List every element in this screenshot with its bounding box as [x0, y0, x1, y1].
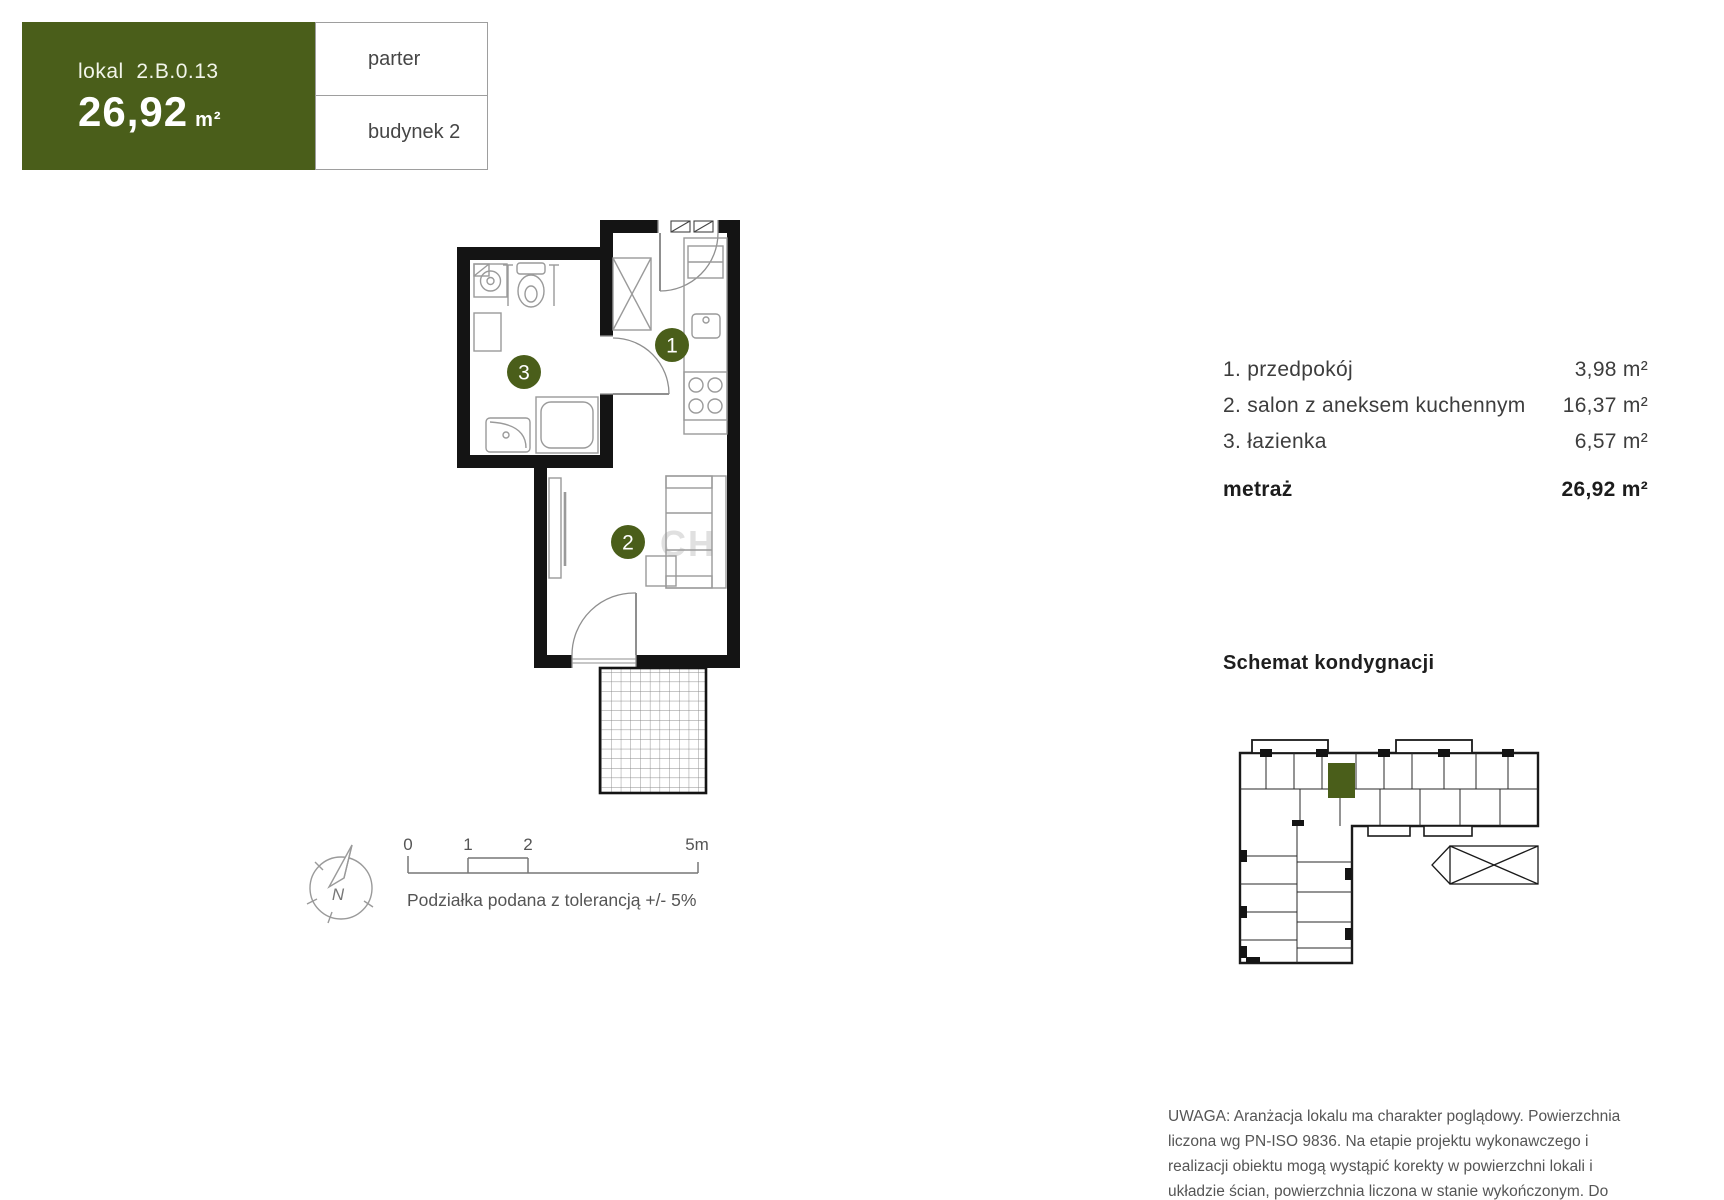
drawing-layer: CH	[0, 0, 1724, 1200]
svg-text:1: 1	[666, 335, 678, 358]
svg-text:2: 2	[622, 532, 634, 555]
scale-tick-0: 0	[403, 835, 412, 854]
tv-cabinet	[549, 478, 565, 578]
north-label: N	[332, 885, 345, 904]
building-schematic	[1240, 740, 1538, 963]
scale-tick-2: 2	[523, 835, 532, 854]
room-marker-2: 2	[611, 525, 645, 559]
stove-icon	[684, 372, 727, 420]
compass: N	[307, 845, 373, 923]
scale-bar: 0 1 2 5m Podziałka podana z tolerancją +…	[403, 835, 709, 910]
hall-wardrobe	[613, 258, 651, 330]
north-arrow-icon	[329, 845, 352, 887]
bathroom-fixtures	[474, 263, 598, 453]
stairs-ramp	[1432, 846, 1538, 884]
sink-icon	[692, 314, 720, 338]
scale-tick-1: 1	[463, 835, 472, 854]
bathroom-bottom-wall	[457, 455, 613, 468]
washer-icon	[474, 264, 507, 297]
floor-plan: 1 2 3	[457, 220, 740, 793]
watermark: CH	[660, 523, 716, 564]
svg-text:3: 3	[518, 362, 530, 385]
bathroom-cabinet	[474, 313, 501, 351]
highlighted-unit	[1328, 763, 1355, 798]
terrace	[600, 668, 706, 793]
shower-icon	[486, 418, 530, 452]
bathtub-icon	[536, 397, 598, 453]
balcony-door	[572, 593, 636, 668]
kitchen-fixtures	[684, 238, 727, 434]
scale-tick-5m: 5m	[685, 835, 709, 854]
scale-caption: Podziałka podana z tolerancją +/- 5%	[407, 890, 696, 910]
apartment-plan-page: lokal 2.B.0.13 26,92m² parter budynek 2 …	[0, 0, 1724, 1200]
room-marker-1: 1	[655, 328, 689, 362]
kitchen-counter	[684, 238, 727, 434]
toilet-icon	[517, 263, 545, 307]
room-marker-3: 3	[507, 355, 541, 389]
fridge-icon	[688, 246, 723, 278]
